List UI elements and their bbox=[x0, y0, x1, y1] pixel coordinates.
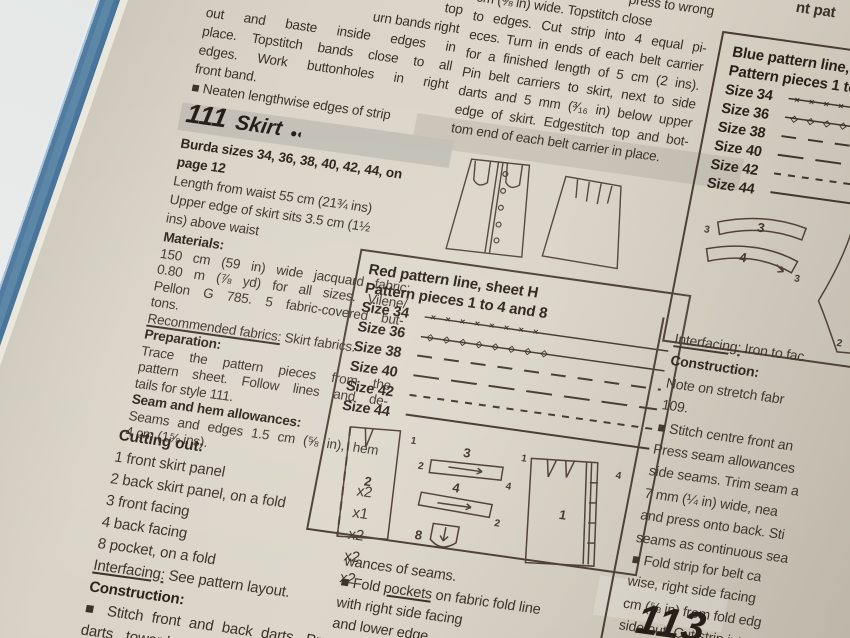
cut-heading-fragment: nt pat bbox=[795, 0, 838, 21]
front-skirt-outline bbox=[446, 156, 539, 259]
piece-4-right-label: 2 bbox=[493, 518, 501, 530]
page-content: top urn bands right out and baste inside… bbox=[0, 0, 850, 638]
magazine-photo: top urn bands right out and baste inside… bbox=[0, 0, 850, 638]
piece-1-left-label: 1 bbox=[520, 453, 528, 465]
strip-4-label: 4 bbox=[738, 250, 749, 266]
piece-3-left-label: 2 bbox=[417, 461, 425, 473]
piece-3-label: 3 bbox=[462, 445, 472, 461]
magazine-page: top urn bands right out and baste inside… bbox=[0, 0, 850, 638]
strip-4-small-label: 3 bbox=[793, 273, 801, 285]
strip-3-label: 3 bbox=[756, 220, 766, 236]
piece-8-label: 8 bbox=[414, 527, 424, 543]
difficulty-dots-icon: ●◐ bbox=[288, 124, 306, 145]
piece-4-label: 4 bbox=[451, 480, 462, 496]
layout-piece-2-outline bbox=[809, 220, 850, 362]
piece-2-label: 2 bbox=[363, 474, 373, 490]
piece-2-corner-label: 1 bbox=[410, 436, 418, 448]
column-1-top: top urn bands right out and baste inside… bbox=[164, 0, 464, 262]
style-name: Skirt bbox=[234, 113, 284, 138]
piece-2-small-label: 2 bbox=[836, 338, 844, 350]
piece-3-right-label: 4 bbox=[505, 481, 513, 493]
layout-strip-4-outline bbox=[704, 241, 799, 273]
piece-1-right-label: 4 bbox=[615, 470, 623, 482]
piece-1-label: 1 bbox=[558, 507, 568, 523]
fold-pre: ■ Fold bbox=[339, 574, 385, 596]
strip-3-small-label: 3 bbox=[703, 224, 711, 236]
style-number: 111 bbox=[185, 104, 229, 128]
red-pattern-box: Red pattern line, sheet H Pattern pieces… bbox=[306, 249, 691, 577]
